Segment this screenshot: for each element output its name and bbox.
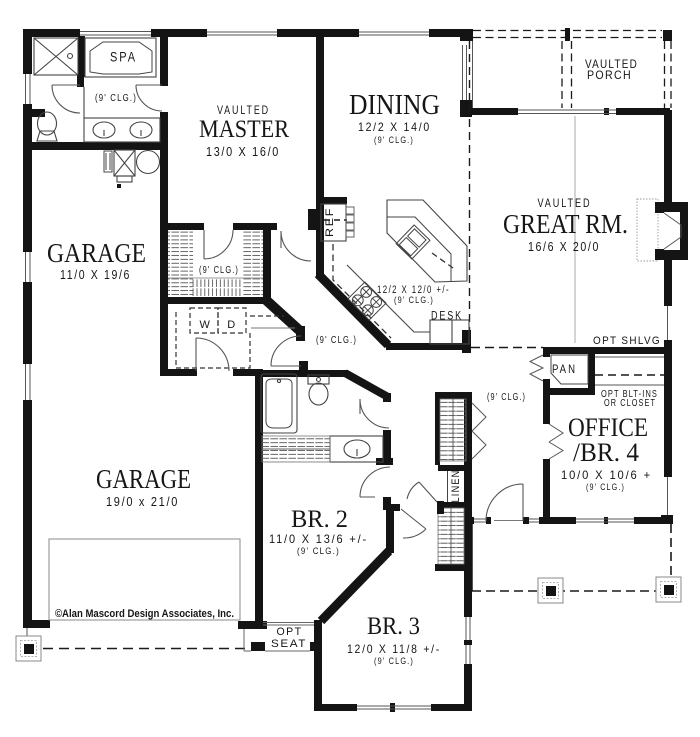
svg-text:13/0 X 16/0: 13/0 X 16/0 (206, 144, 280, 159)
svg-text:SPA: SPA (110, 49, 137, 65)
svg-text:(9' CLG.): (9' CLG.) (95, 93, 137, 104)
svg-text:BR. 3: BR. 3 (367, 613, 420, 640)
svg-text:12/2 X 14/0: 12/2 X 14/0 (358, 120, 431, 134)
svg-text:(9' CLG.): (9' CLG.) (586, 482, 625, 493)
svg-text:D: D (227, 319, 236, 331)
svg-text:DESK: DESK (431, 309, 463, 323)
svg-text:VAULTED: VAULTED (538, 196, 592, 210)
svg-text:/BR. 4: /BR. 4 (573, 438, 639, 467)
svg-text:VAULTED: VAULTED (217, 103, 270, 117)
svg-text:SEAT: SEAT (271, 638, 307, 650)
svg-text:GARAGE: GARAGE (96, 464, 191, 494)
svg-text:(9' CLG.): (9' CLG.) (316, 335, 357, 346)
svg-text:PAN: PAN (552, 362, 577, 376)
svg-text:REF: REF (324, 207, 336, 237)
svg-text:(9' CLG.): (9' CLG.) (199, 265, 239, 276)
svg-text:OPT: OPT (277, 626, 303, 638)
svg-text:GARAGE: GARAGE (47, 238, 146, 268)
svg-text:11/0 X 13/6 +/-: 11/0 X 13/6 +/- (269, 532, 368, 546)
svg-text:PORCH: PORCH (587, 68, 632, 82)
svg-text:(9' CLG.): (9' CLG.) (487, 392, 526, 403)
svg-text:19/0 x 21/0: 19/0 x 21/0 (106, 494, 179, 509)
svg-text:(9' CLG.): (9' CLG.) (297, 546, 340, 557)
svg-text:BR. 2: BR. 2 (291, 506, 348, 533)
svg-text:12/0 X 11/8 +/-: 12/0 X 11/8 +/- (347, 642, 441, 656)
svg-text:©Alan Mascord Design Associate: ©Alan Mascord Design Associates, Inc. (55, 608, 234, 620)
svg-text:OR CLOSET: OR CLOSET (604, 398, 656, 409)
svg-text:(9' CLG.): (9' CLG.) (394, 295, 434, 306)
svg-text:OPT SHLVG: OPT SHLVG (593, 335, 661, 347)
svg-text:W: W (200, 319, 212, 331)
svg-text:MASTER: MASTER (199, 116, 289, 143)
svg-text:LINEN: LINEN (450, 470, 462, 503)
svg-text:11/0 X 19/6: 11/0 X 19/6 (60, 267, 131, 282)
svg-text:GREAT RM.: GREAT RM. (503, 209, 628, 239)
svg-text:DINING: DINING (349, 89, 440, 121)
svg-text:(9' CLG.): (9' CLG.) (374, 656, 414, 667)
svg-text:16/6 X 20/0: 16/6 X 20/0 (528, 239, 600, 254)
svg-text:(9' CLG.): (9' CLG.) (374, 135, 414, 146)
svg-text:10/0 X 10/6 +: 10/0 X 10/6 + (561, 468, 652, 482)
